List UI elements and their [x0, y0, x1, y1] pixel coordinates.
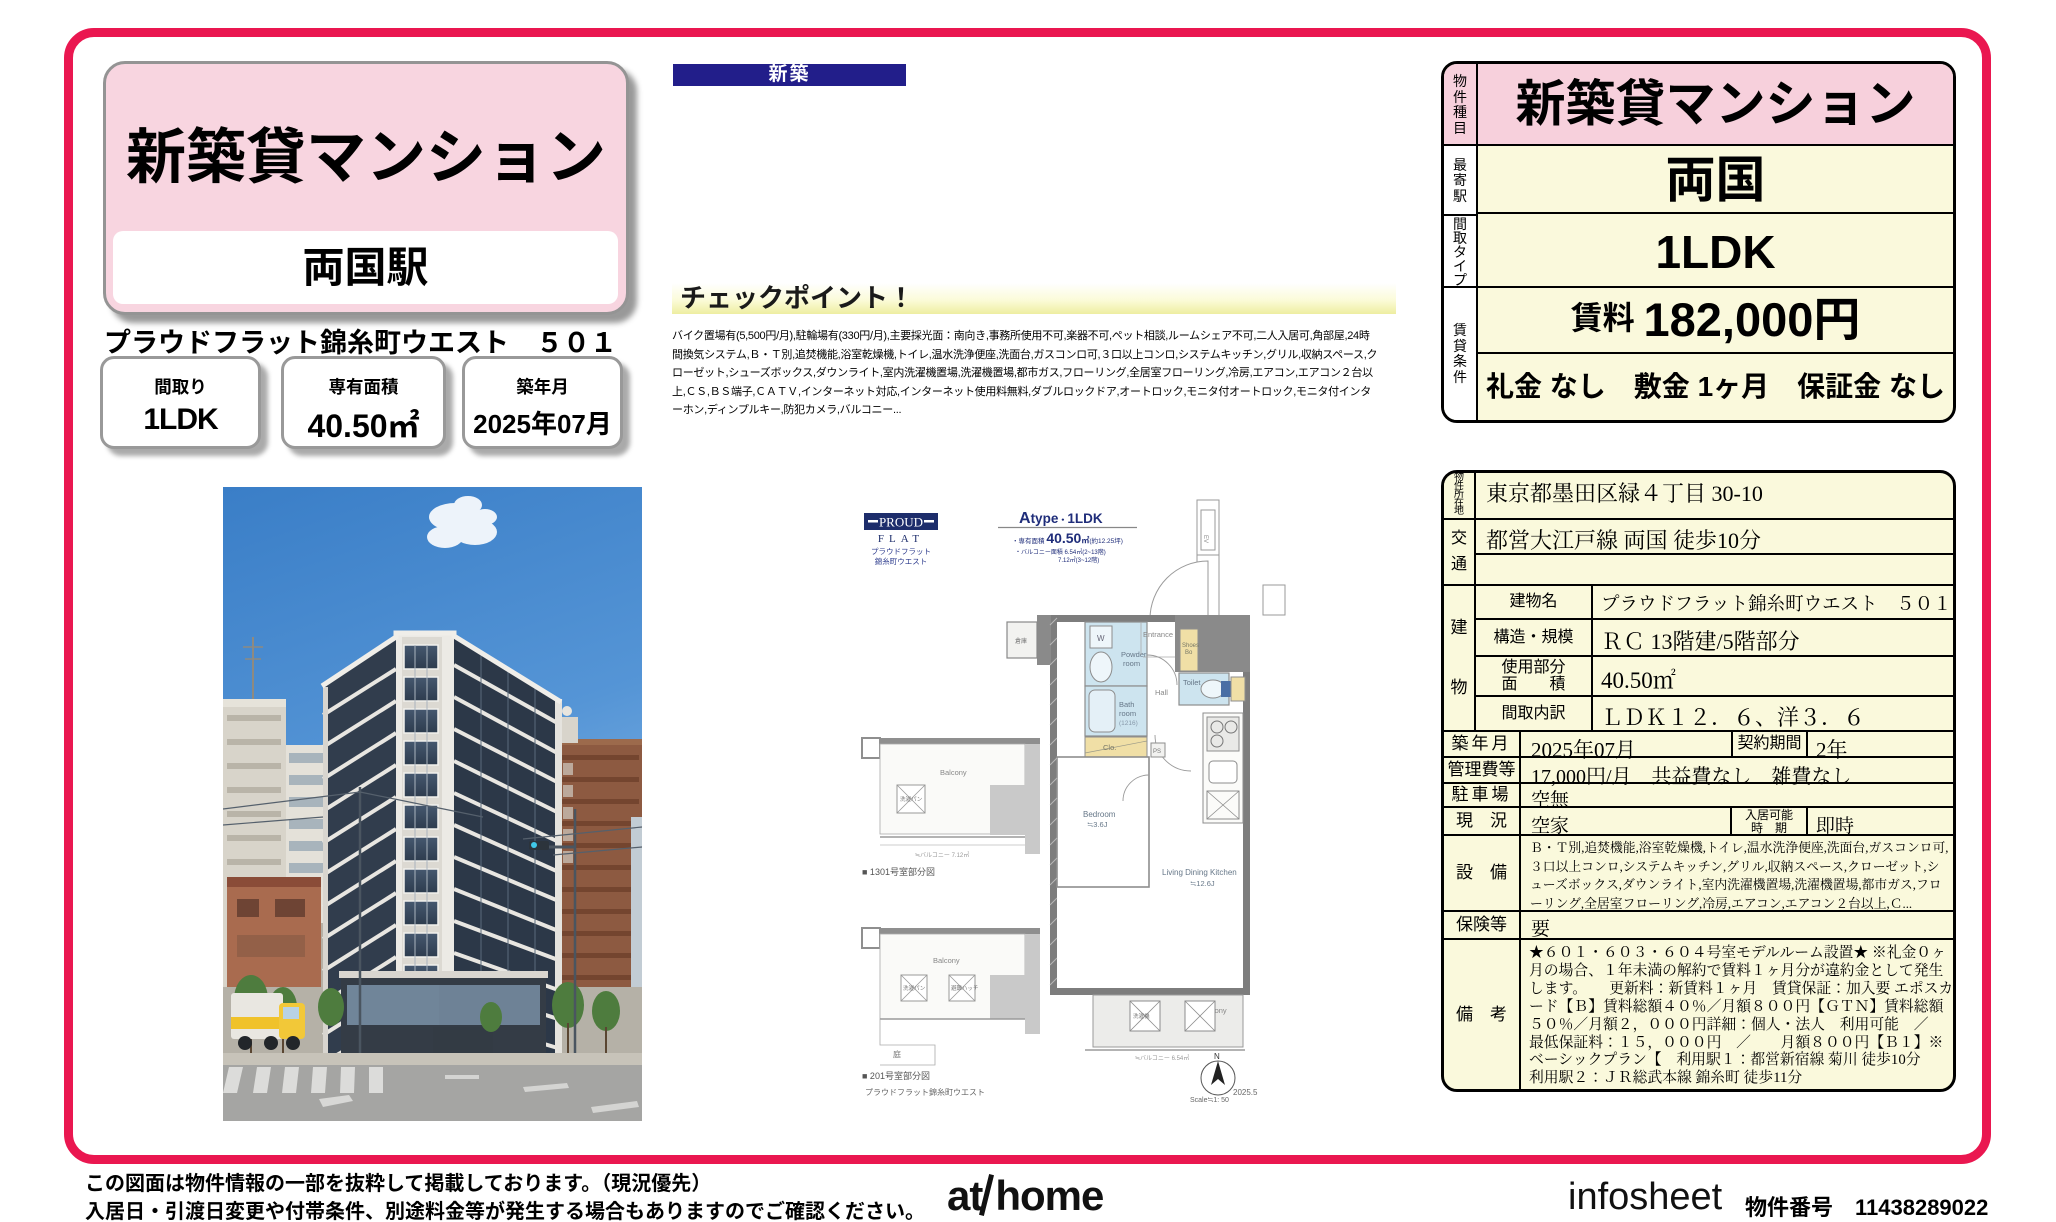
- svg-text:Balcony: Balcony: [940, 768, 967, 777]
- svg-text:Bedroom: Bedroom: [1083, 810, 1116, 819]
- svg-text:FLAT: FLAT: [878, 533, 924, 545]
- svg-text:Living Dining Kitchen: Living Dining Kitchen: [1162, 868, 1237, 877]
- svg-text:Scale≒1: 50: Scale≒1: 50: [1190, 1097, 1229, 1104]
- svg-text:Balcony: Balcony: [933, 956, 960, 965]
- svg-text:Shoes: Shoes: [1182, 643, 1199, 649]
- svg-text:Powder: Powder: [1121, 650, 1147, 659]
- svg-text:Atype・1LDK: Atype・1LDK: [1019, 510, 1103, 527]
- svg-text:洗濯パン: 洗濯パン: [903, 984, 926, 992]
- svg-text:(1216): (1216): [1119, 720, 1138, 727]
- svg-text:≒バルコニー 7.12㎡: ≒バルコニー 7.12㎡: [915, 851, 969, 859]
- svg-text:Toilet: Toilet: [1183, 678, 1201, 687]
- svg-text:≒3.6J: ≒3.6J: [1087, 820, 1108, 829]
- svg-text:room: room: [1123, 659, 1140, 668]
- svg-text:■ 201号室部分図: ■ 201号室部分図: [862, 1070, 930, 1081]
- svg-text:・専有面積 40.50㎡(約12.25坪): ・専有面積 40.50㎡(約12.25坪): [1012, 530, 1123, 546]
- svg-text:避難ハッチ: 避難ハッチ: [951, 984, 979, 992]
- svg-text:≒12.6J: ≒12.6J: [1190, 879, 1215, 888]
- svg-text:N: N: [1214, 1052, 1220, 1061]
- svg-text:≒バルコニー 6.54㎡: ≒バルコニー 6.54㎡: [1135, 1054, 1189, 1062]
- svg-text:庭: 庭: [893, 1049, 901, 1059]
- svg-text:EV: EV: [1202, 535, 1208, 543]
- svg-text:PROUD: PROUD: [879, 515, 923, 530]
- svg-text:プラウドフラット: プラウドフラット: [871, 547, 931, 556]
- svg-text:洗濯パン: 洗濯パン: [900, 795, 923, 803]
- svg-text:■ 1301号室部分図: ■ 1301号室部分図: [862, 866, 935, 877]
- svg-text:Bath: Bath: [1119, 700, 1134, 709]
- svg-text:W: W: [1097, 634, 1105, 643]
- svg-text:・バルコニー面積 6.54㎡(2~13階): ・バルコニー面積 6.54㎡(2~13階): [1015, 548, 1106, 556]
- svg-text:洗濯機: 洗濯機: [1133, 1012, 1150, 1020]
- svg-text:Hall: Hall: [1155, 688, 1168, 697]
- svg-text:PS: PS: [1153, 749, 1161, 755]
- svg-text:錦糸町ウエスト: 錦糸町ウエスト: [875, 556, 928, 566]
- svg-text:Clo.: Clo.: [1103, 743, 1116, 752]
- svg-text:7.12㎡(3~12階): 7.12㎡(3~12階): [1058, 556, 1099, 564]
- svg-text:プラウドフラット錦糸町ウエスト: プラウドフラット錦糸町ウエスト: [865, 1087, 985, 1097]
- svg-text:2025.5: 2025.5: [1233, 1088, 1258, 1097]
- svg-text:Bo: Bo: [1185, 650, 1193, 656]
- svg-text:room: room: [1119, 709, 1136, 718]
- svg-text:倉庫: 倉庫: [1015, 637, 1027, 645]
- svg-text:Entrance: Entrance: [1143, 630, 1173, 639]
